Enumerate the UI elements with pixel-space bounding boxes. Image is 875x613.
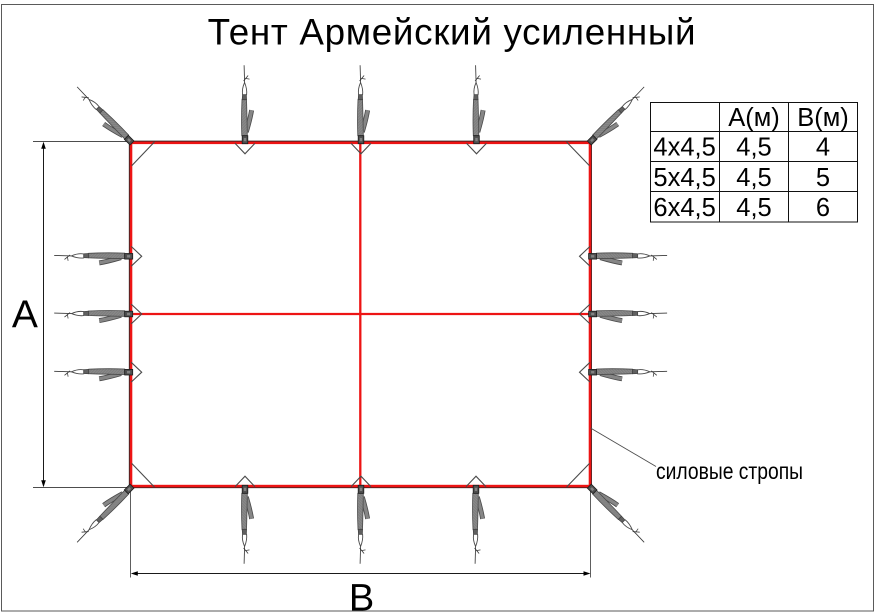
svg-text:4х4,5: 4х4,5	[653, 133, 715, 161]
svg-text:А: А	[12, 293, 38, 336]
svg-text:4,5: 4,5	[736, 194, 771, 222]
svg-text:4,5: 4,5	[736, 164, 771, 192]
svg-text:4,5: 4,5	[736, 133, 771, 161]
svg-text:А(м): А(м)	[728, 104, 780, 132]
svg-text:5: 5	[816, 164, 830, 192]
svg-text:6х4,5: 6х4,5	[653, 194, 715, 222]
svg-text:4: 4	[816, 133, 830, 161]
svg-text:силовые стропы: силовые стропы	[656, 458, 803, 484]
svg-text:6: 6	[816, 194, 830, 222]
svg-text:В(м): В(м)	[797, 104, 849, 132]
svg-text:В: В	[349, 578, 374, 613]
svg-text:5х4,5: 5х4,5	[653, 164, 715, 192]
svg-text:Тент Армейский усиленный: Тент Армейский усиленный	[208, 12, 696, 53]
